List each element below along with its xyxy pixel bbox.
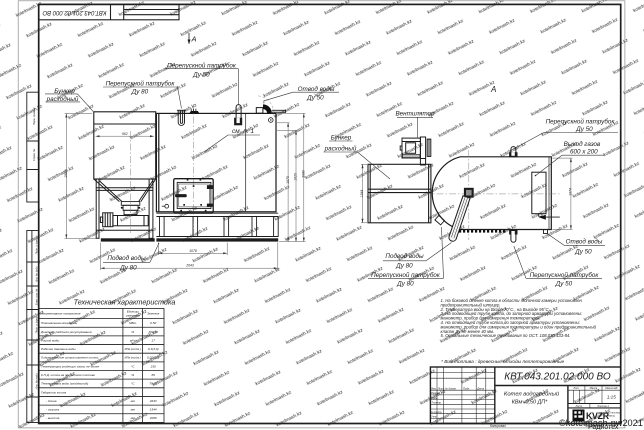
svg-text:80: 80 bbox=[151, 373, 155, 377]
svg-text:Разраб.: Разраб. bbox=[431, 391, 441, 395]
svg-text:Ду 80: Ду 80 bbox=[396, 281, 414, 288]
svg-text:Ду 50: Ду 50 bbox=[574, 248, 592, 255]
svg-text:КВТ.043.201.02.000 ВО: КВТ.043.201.02.000 ВО bbox=[42, 9, 106, 15]
svg-text:Бункер: Бункер bbox=[331, 135, 352, 142]
svg-text:Перв. примен.: Перв. примен. bbox=[32, 107, 36, 125]
svg-text:Подвод воды: Подвод воды bbox=[385, 252, 424, 260]
svg-text:- высота: - высота bbox=[46, 416, 60, 420]
svg-text:Отвод воды: Отвод воды bbox=[566, 238, 603, 246]
svg-text:0,02(0,2): 0,02(0,2) bbox=[147, 356, 159, 360]
svg-text:1078: 1078 bbox=[189, 249, 197, 253]
svg-text:%: % bbox=[131, 330, 134, 334]
svg-text:5. Остальные технические треб: 5. Остальные технические требования по О… bbox=[441, 333, 571, 338]
svg-text:Т.контр.: Т.контр. bbox=[431, 401, 442, 405]
svg-text:МВт: МВт bbox=[129, 321, 137, 325]
svg-text:Радиотех: Радиотех bbox=[588, 424, 619, 430]
svg-text:0,3(3,0): 0,3(3,0) bbox=[148, 347, 159, 351]
svg-text:- длина: - длина bbox=[46, 399, 57, 403]
svg-text:0,50: 0,50 bbox=[150, 321, 156, 325]
svg-text:70-95: 70-95 bbox=[149, 382, 157, 386]
svg-text:КОТЕЛЬНЫЙ: КОТЕЛЬНЫЙ bbox=[608, 412, 621, 415]
svg-text:Расход воды: Расход воды bbox=[41, 338, 60, 342]
svg-text:К.П.Д. котла на проектном топл: К.П.Д. котла на проектном топливе bbox=[41, 373, 95, 377]
svg-text:Н.контр.: Н.контр. bbox=[431, 410, 442, 414]
svg-text:Вентилятор: Вентилятор bbox=[395, 111, 435, 118]
svg-text:Перепускной патрубок: Перепускной патрубок bbox=[530, 271, 600, 279]
svg-text:м³/ч: м³/ч bbox=[130, 338, 136, 342]
svg-text:1:15: 1:15 bbox=[607, 395, 616, 400]
svg-text:Подвод воды: Подвод воды bbox=[107, 254, 146, 262]
svg-text:Перепускной патрубок: Перепускной патрубок bbox=[106, 80, 176, 88]
svg-text:Температура воды (вход/выход): Температура воды (вход/выход) bbox=[41, 382, 88, 386]
svg-text:Техническая характеристика: Техническая характеристика bbox=[74, 298, 176, 307]
svg-text:Наименование показателя: Наименование показателя bbox=[41, 312, 81, 316]
svg-text:расходный: расходный bbox=[324, 145, 357, 153]
svg-text:1674: 1674 bbox=[568, 188, 572, 196]
svg-text:17: 17 bbox=[151, 338, 155, 342]
svg-text:Листов 1: Листов 1 bbox=[596, 404, 609, 408]
svg-text:Пров.: Пров. bbox=[431, 396, 438, 400]
svg-text:Лист: Лист bbox=[437, 386, 446, 390]
svg-text:Перепускной патрубок: Перепускной патрубок bbox=[546, 117, 616, 125]
svg-text:Инв. № подл.: Инв. № подл. bbox=[35, 372, 39, 389]
svg-text:Ду 50: Ду 50 bbox=[306, 94, 324, 101]
svg-text:КВм -0,50 ДП*: КВм -0,50 ДП* bbox=[512, 400, 548, 406]
svg-text:см. п. 1: см. п. 1 bbox=[232, 128, 255, 135]
svg-text:%: % bbox=[131, 373, 134, 377]
svg-text:Диапазон рабочего регулировани: Диапазон рабочего регулирования bbox=[40, 330, 92, 334]
svg-text:Лист: Лист bbox=[574, 404, 583, 408]
svg-text:Ду 50: Ду 50 bbox=[192, 71, 210, 78]
svg-text:Подп. и дата: Подп. и дата bbox=[35, 237, 39, 254]
svg-text:А: А bbox=[191, 35, 197, 44]
svg-text:1544: 1544 bbox=[360, 190, 364, 198]
svg-text:230: 230 bbox=[150, 364, 156, 368]
svg-text:1960: 1960 bbox=[64, 170, 68, 178]
svg-text:Подп. и дата: Подп. и дата bbox=[35, 316, 39, 333]
svg-text:Подп.: Подп. bbox=[463, 386, 470, 390]
svg-text:- ширина: - ширина bbox=[46, 408, 59, 412]
svg-text:2080: 2080 bbox=[302, 170, 306, 179]
svg-text:600 х 200: 600 х 200 bbox=[570, 148, 598, 155]
svg-text:Габариты котла: Габариты котла bbox=[41, 390, 66, 394]
svg-text:* Вид топлива : древесные от: * Вид топлива : древесные отходы пеллети… bbox=[441, 359, 565, 365]
svg-text:Рабочее давление воды: Рабочее давление воды bbox=[41, 347, 76, 351]
svg-text:МПа (кгс/см ): МПа (кгс/см ) bbox=[125, 356, 141, 360]
svg-text:Изм: Изм bbox=[431, 386, 436, 390]
svg-text:Инв. № дубл.: Инв. № дубл. bbox=[35, 265, 39, 282]
svg-text:Отвод воды: Отвод воды bbox=[298, 85, 335, 93]
svg-text:Номинальная мощность: Номинальная мощность bbox=[41, 321, 78, 325]
svg-text:1544: 1544 bbox=[150, 408, 157, 412]
svg-text:Котел водогрейный: Котел водогрейный bbox=[504, 391, 560, 398]
svg-text:Ду 50: Ду 50 bbox=[575, 126, 593, 133]
svg-text:Взам. инв. №: Взам. инв. № bbox=[35, 289, 39, 306]
svg-text:Ду 80: Ду 80 bbox=[119, 264, 137, 271]
svg-text:Гидравлическое сопротивление к: Гидравлическое сопротивление котла bbox=[41, 356, 98, 360]
svg-text:1675: 1675 bbox=[286, 176, 290, 184]
svg-text:Выход газов: Выход газов bbox=[564, 140, 601, 148]
svg-text:Утв.: Утв. bbox=[431, 415, 437, 419]
svg-text:Перепускной патрубок: Перепускной патрубок bbox=[167, 61, 237, 69]
svg-text:Лит.: Лит. bbox=[572, 386, 579, 390]
svg-text:А: А bbox=[490, 85, 496, 94]
svg-text:Температура уходящих газов, не: Температура уходящих газов, не более bbox=[41, 364, 99, 368]
svg-text:Дата: Дата bbox=[476, 386, 484, 390]
svg-text:Перепускной патрубок: Перепускной патрубок bbox=[371, 271, 441, 279]
svg-text:КВТ.043.201.02.000 ВО: КВТ.043.201.02.000 ВО bbox=[504, 372, 611, 383]
svg-text:Копировал: Копировал bbox=[490, 424, 506, 428]
svg-text:Ду 80: Ду 80 bbox=[131, 89, 149, 96]
svg-text:2643: 2643 bbox=[185, 264, 194, 268]
svg-text:№ докум.: № докум. bbox=[445, 386, 457, 390]
svg-text:30-100: 30-100 bbox=[148, 330, 158, 334]
svg-text:Масса: Масса bbox=[590, 386, 598, 390]
svg-text:2080: 2080 bbox=[149, 416, 157, 420]
svg-text:Масштаб: Масштаб bbox=[605, 386, 618, 390]
svg-text:измерения: измерения bbox=[126, 313, 141, 317]
svg-text:1620: 1620 bbox=[294, 173, 298, 181]
svg-text:МПа (кгс/см ): МПа (кгс/см ) bbox=[125, 347, 141, 351]
svg-text:ЗАВОД: ЗАВОД bbox=[608, 415, 615, 418]
svg-text:Справ. №: Справ. № bbox=[32, 149, 36, 161]
svg-text:902: 902 bbox=[122, 132, 128, 136]
svg-text:Значения: Значения bbox=[147, 312, 160, 316]
svg-text:2643: 2643 bbox=[149, 399, 157, 403]
svg-text:Ду 80: Ду 80 bbox=[395, 262, 413, 269]
svg-text:Ду 50: Ду 50 bbox=[555, 281, 573, 288]
